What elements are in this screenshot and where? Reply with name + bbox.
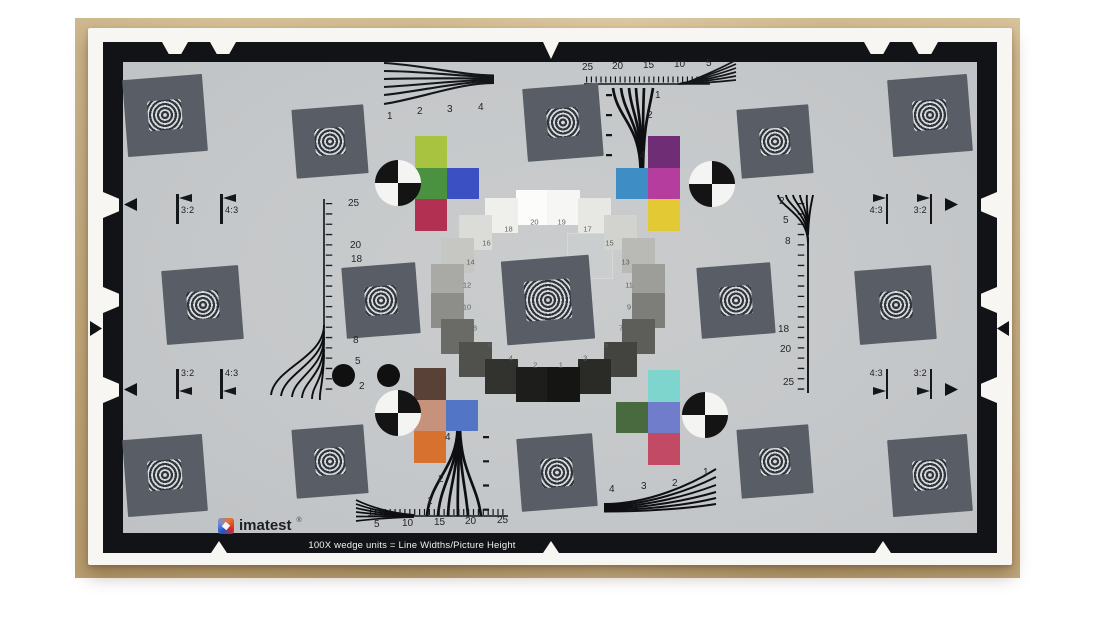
scale-number: 10 [674,59,685,70]
flag-icon [873,194,886,202]
aspect-ratio-label: 3:2 [181,205,194,215]
ring-patch-number: 4 [509,354,513,363]
wedge-units-caption: 100X wedge units = Line Widths/Picture H… [272,540,552,551]
ring-patch-number: 7 [619,323,623,332]
color-patch-yellow [648,199,680,231]
scale-number: 2 [779,196,785,207]
scale-number: 15 [643,60,654,71]
slant-square [122,74,208,157]
color-patch-aqua [648,370,680,402]
imatest-logo-text: imatest [239,517,292,534]
flag-icon [223,194,236,202]
ring-patch-3 [578,359,611,394]
border-notch-top [162,42,188,54]
scale-number: 5 [783,215,789,226]
registration-circle [375,160,421,206]
slant-square [736,105,813,180]
slant-square [887,434,973,517]
ruler-wedge-top [578,58,736,90]
color-patch-blue [447,168,479,200]
slant-square [854,265,937,345]
scale-number: 20 [465,516,476,527]
slant-square [291,425,368,500]
border-notch-left [103,192,119,218]
slant-square [341,263,420,340]
ring-patch-number: 13 [621,257,629,266]
ring-patch-4 [485,359,518,394]
scale-number: 25 [783,377,794,388]
ring-patch-number: 9 [627,302,631,311]
registered-trademark-mark: ® [297,517,302,524]
scale-number: 1 [655,90,661,101]
bullseye-pattern [912,99,948,131]
flag-icon [179,194,192,202]
bullseye-pattern [314,128,346,157]
slant-square [736,425,813,500]
scale-number: 2 [417,106,423,117]
scale-number: 4 [609,484,615,495]
ring-patch-number: 20 [530,217,538,226]
ring-patch-number: 1 [559,361,563,370]
bullseye-pattern [759,128,791,157]
scale-number: 15 [434,517,445,528]
flag-icon [223,387,236,395]
color-patch-crimson [648,433,680,465]
scale-number: 5 [374,519,380,530]
ring-patch-number: 14 [466,257,474,266]
color-patch-purple [648,136,680,168]
aspect-ratio-label: 3:2 [181,368,194,378]
color-patch-yellow-green [415,136,447,168]
flag-icon [917,387,930,395]
scale-number: 8 [785,236,791,247]
border-notch-top [912,42,938,54]
border-notch-top [864,42,890,54]
color-patch-magenta [648,168,680,200]
aspect-marker-4-3: 4:3 [220,367,254,403]
aspect-ratio-label: 3:2 [914,368,927,378]
bullseye-pattern [147,99,183,131]
scale-number: 25 [582,62,593,73]
bullseye-pattern [147,459,183,491]
border-notch-left [103,287,119,313]
color-patch-medium-blue [446,400,478,432]
bullseye-pattern [912,459,948,491]
hyperbolic-wedge-top-left [384,60,494,108]
scale-number: 3 [641,481,647,492]
hyperbolic-wedge-bottom-right [604,464,716,516]
aspect-marker-4-3: 4:3 [854,192,888,228]
slant-square [696,263,775,340]
slant-square [887,74,973,157]
imatest-logo: imatest ® [218,517,302,534]
screenshot-stage: 2019181716151413121110987654321123425201… [0,0,1098,635]
scale-number: 5 [706,58,712,69]
marker-pole [886,369,889,399]
scale-number: 20 [350,240,361,251]
bullseye-pattern [523,278,572,322]
aspect-marker-3-2: 3:2 [176,367,210,403]
aspect-marker-4-3: 4:3 [854,367,888,403]
registration-arrow-right [945,198,958,211]
aspect-ratio-label: 4:3 [870,368,883,378]
ring-patch-number: 16 [482,238,490,247]
scale-number: 1 [703,467,709,478]
scale-number: 18 [778,324,789,335]
registration-arrow-left [124,383,137,396]
border-notch-right [981,192,997,218]
slant-square [501,254,595,345]
ring-patch-number: 19 [557,217,565,226]
bullseye-pattern [540,457,574,488]
slant-square [291,105,368,180]
aspect-ratio-label: 4:3 [225,368,238,378]
ring-patch-number: 5 [604,341,608,350]
border-notch-right [981,377,997,403]
ring-patch-2 [516,367,549,402]
color-patch-orange [414,431,446,463]
scale-number: 25 [348,198,359,209]
registration-arrow-right [945,383,958,396]
color-patch-crimson [415,199,447,231]
border-notch-right [981,287,997,313]
bullseye-pattern [546,107,580,138]
black-dot [332,364,355,387]
slant-square [522,83,603,162]
scale-number: 1 [427,496,433,507]
scale-number: 20 [780,344,791,355]
scale-number: 2 [672,478,678,489]
aspect-marker-3-2: 3:2 [898,367,932,403]
color-patch-periwinkle [648,402,680,434]
slant-square [161,265,244,345]
scale-number: 10 [402,518,413,529]
ring-patch-number: 15 [605,238,613,247]
aspect-marker-4-3: 4:3 [220,192,254,228]
registration-circle [689,161,735,207]
registration-circle [375,390,421,436]
scale-number: 8 [353,335,359,346]
scale-number: 3 [447,104,453,115]
margin-arrow-right [997,321,1009,336]
aspect-marker-3-2: 3:2 [176,192,210,228]
ring-patch-number: 3 [583,354,587,363]
margin-arrow-left [90,321,102,336]
bullseye-pattern [364,286,398,317]
border-notch-top-center [543,42,559,59]
ring-patch-number: 2 [533,361,537,370]
black-dot [377,364,400,387]
aspect-marker-3-2: 3:2 [898,192,932,228]
border-notch-bottom [211,541,227,553]
ring-patch-number: 17 [583,225,591,234]
scale-number: 18 [351,254,362,265]
aspect-ratio-label: 4:3 [225,205,238,215]
border-notch-top [210,42,236,54]
ring-patch-number: 11 [625,281,633,290]
registration-circle [682,392,728,438]
color-patch-olive-green [616,402,648,434]
bullseye-pattern [759,448,791,477]
marker-pole [886,194,889,224]
color-patch-cyan-blue [616,168,648,200]
slant-square [122,434,208,517]
color-patch-dark-brown [414,368,446,400]
border-notch-bottom [875,541,891,553]
registration-arrow-left [124,198,137,211]
flag-icon [917,194,930,202]
aspect-ratio-label: 4:3 [870,205,883,215]
scale-number: 4 [478,102,484,113]
ring-patch-number: 10 [463,302,471,311]
bullseye-pattern [719,286,753,317]
slant-square [516,433,597,512]
flag-icon [873,387,886,395]
bullseye-pattern [185,290,219,321]
scale-number: 25 [497,515,508,526]
ring-patch-number: 18 [504,225,512,234]
scale-number: 5 [355,356,361,367]
ring-patch-1 [547,367,580,402]
scale-number: 20 [612,61,623,72]
marker-pole [930,194,933,224]
scale-number: 2 [647,110,653,121]
marker-pole [930,369,933,399]
ring-patch-number: 6 [488,341,492,350]
bullseye-pattern [878,290,912,321]
scale-number: 4 [640,150,646,161]
bullseye-pattern [314,448,346,477]
aspect-ratio-label: 3:2 [914,205,927,215]
scale-number: 2 [438,474,444,485]
flag-icon [179,387,192,395]
border-notch-left [103,377,119,403]
scale-number: 4 [445,432,451,443]
scale-number: 1 [387,111,393,122]
ring-patch-number: 8 [473,323,477,332]
ring-patch-number: 12 [463,281,471,290]
scale-number: 2 [359,381,365,392]
imatest-logo-icon [218,518,234,534]
